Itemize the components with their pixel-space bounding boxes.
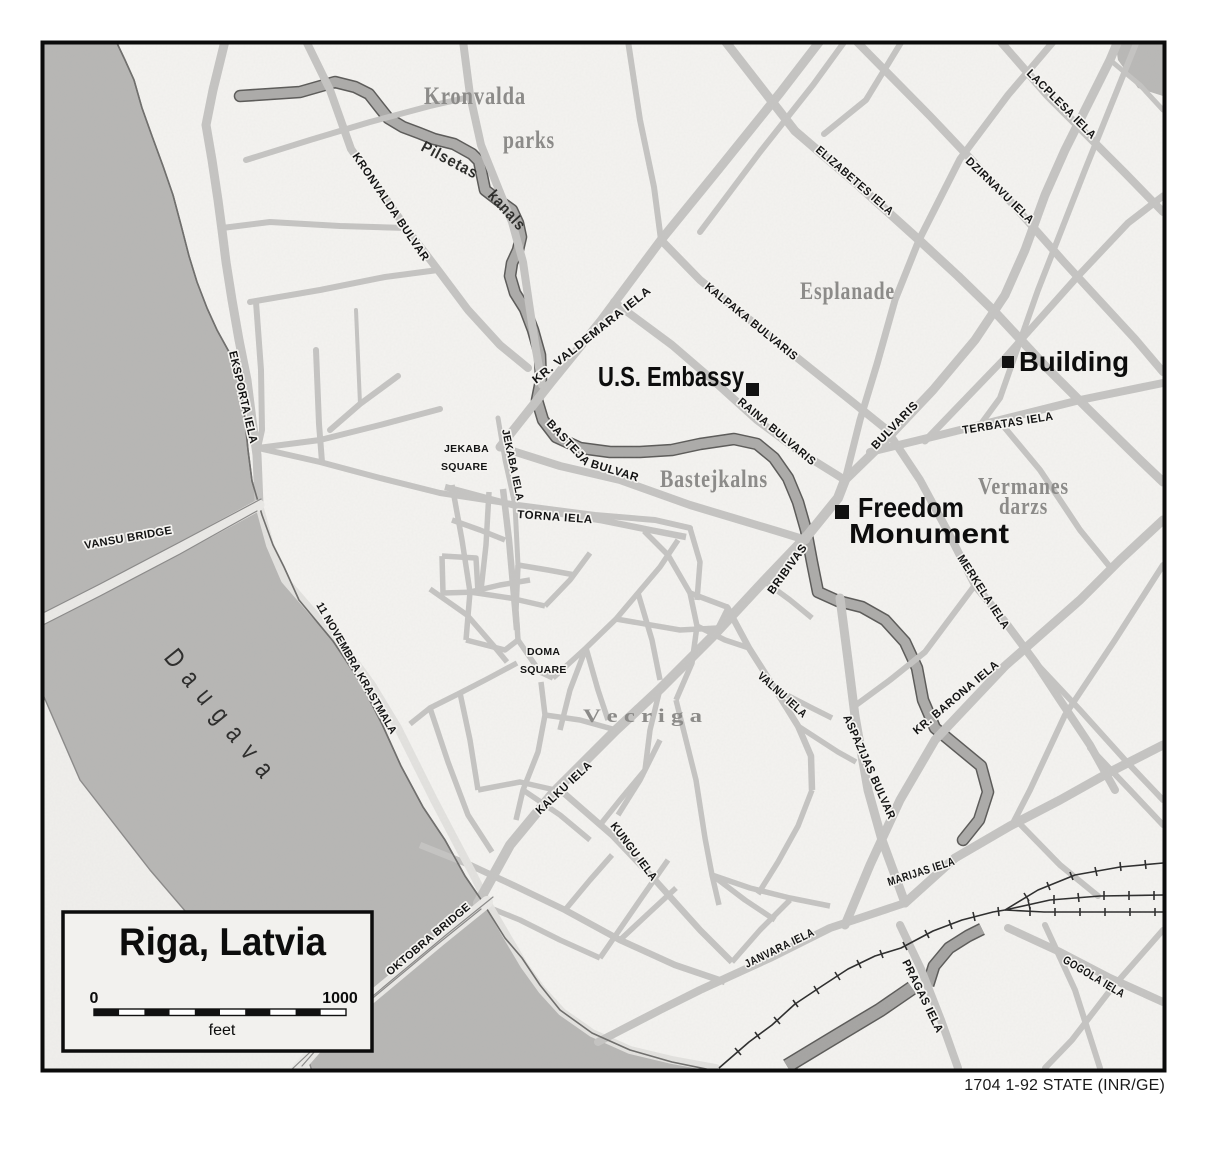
svg-text:Monument: Monument xyxy=(849,518,1009,549)
svg-text:darzs: darzs xyxy=(999,494,1048,520)
svg-text:V e c r i g a: V e c r i g a xyxy=(583,706,703,727)
svg-text:Bastejkalns: Bastejkalns xyxy=(660,466,768,493)
svg-text:0: 0 xyxy=(90,990,99,1007)
svg-text:Building: Building xyxy=(1019,346,1129,377)
svg-text:1000: 1000 xyxy=(322,990,358,1007)
svg-text:Riga, Latvia: Riga, Latvia xyxy=(119,921,326,964)
svg-text:JEKABA: JEKABA xyxy=(444,443,489,455)
svg-text:feet: feet xyxy=(209,1022,236,1039)
svg-text:Kronvalda: Kronvalda xyxy=(424,83,526,110)
svg-text:Esplanade: Esplanade xyxy=(800,278,895,305)
svg-text:SQUARE: SQUARE xyxy=(441,461,488,473)
svg-text:SQUARE: SQUARE xyxy=(520,664,567,676)
svg-text:DOMA: DOMA xyxy=(527,646,560,658)
svg-text:1704 1-92 STATE (INR/GE): 1704 1-92 STATE (INR/GE) xyxy=(964,1077,1165,1094)
svg-text:U.S. Embassy: U.S. Embassy xyxy=(598,361,744,392)
svg-text:parks: parks xyxy=(503,127,555,154)
